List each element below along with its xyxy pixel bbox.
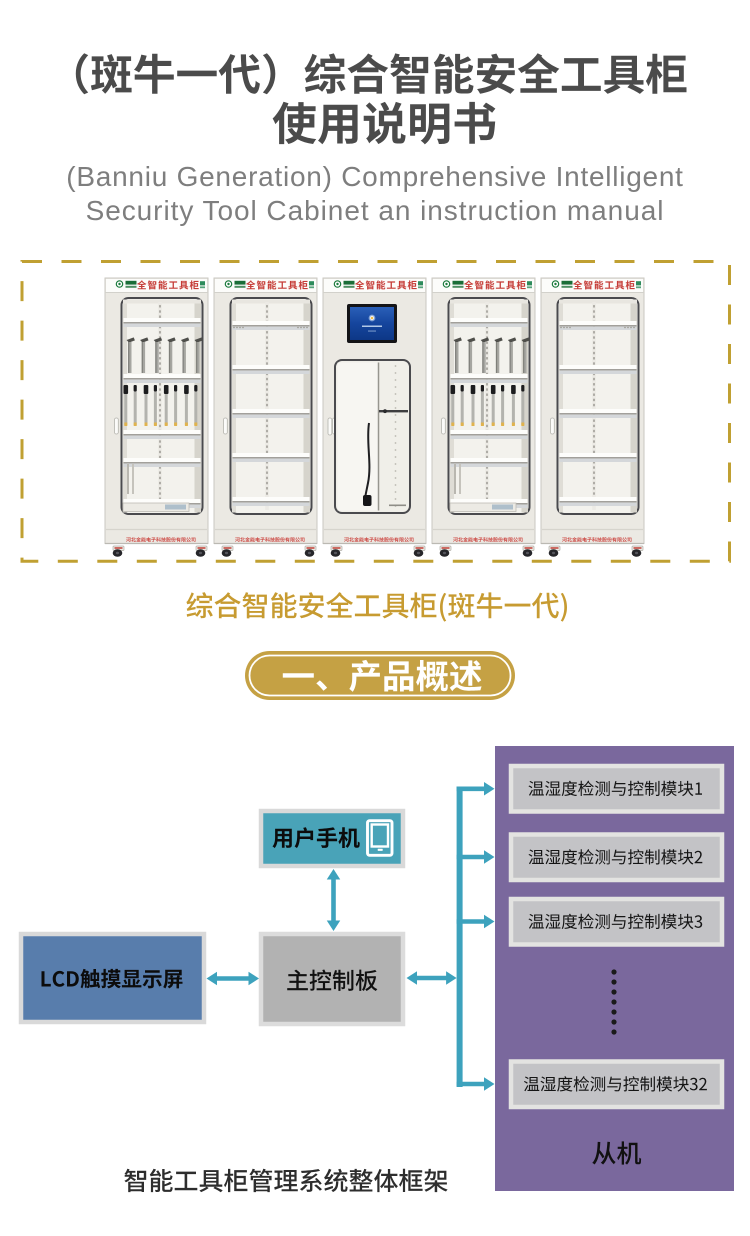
svg-text:Security Tool Cabinet an instr: Security Tool Cabinet an instruction man…	[86, 195, 665, 226]
svg-text:(Banniu Generation) Comprehens: (Banniu Generation) Comprehensive Intell…	[66, 161, 683, 192]
